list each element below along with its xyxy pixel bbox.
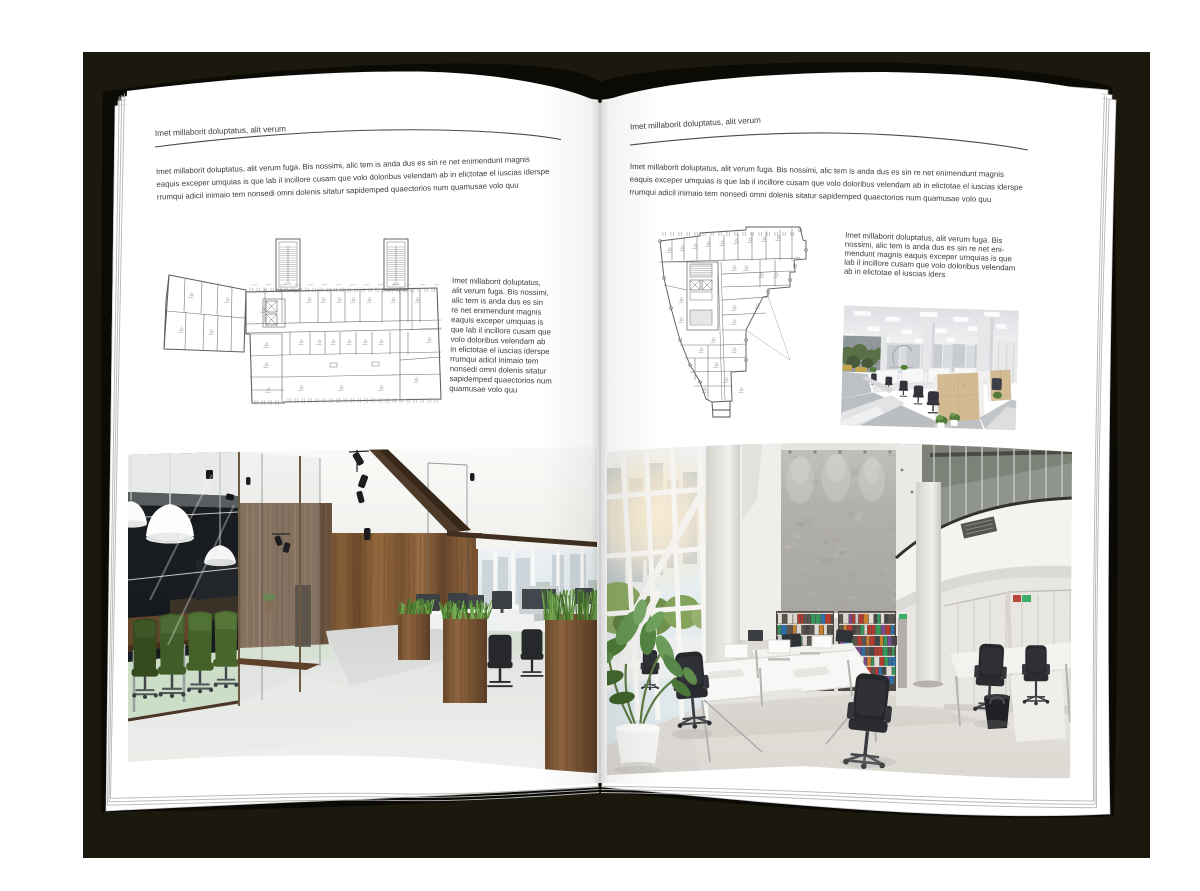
- svg-text:quamusae volo quu: quamusae volo quu: [449, 384, 517, 395]
